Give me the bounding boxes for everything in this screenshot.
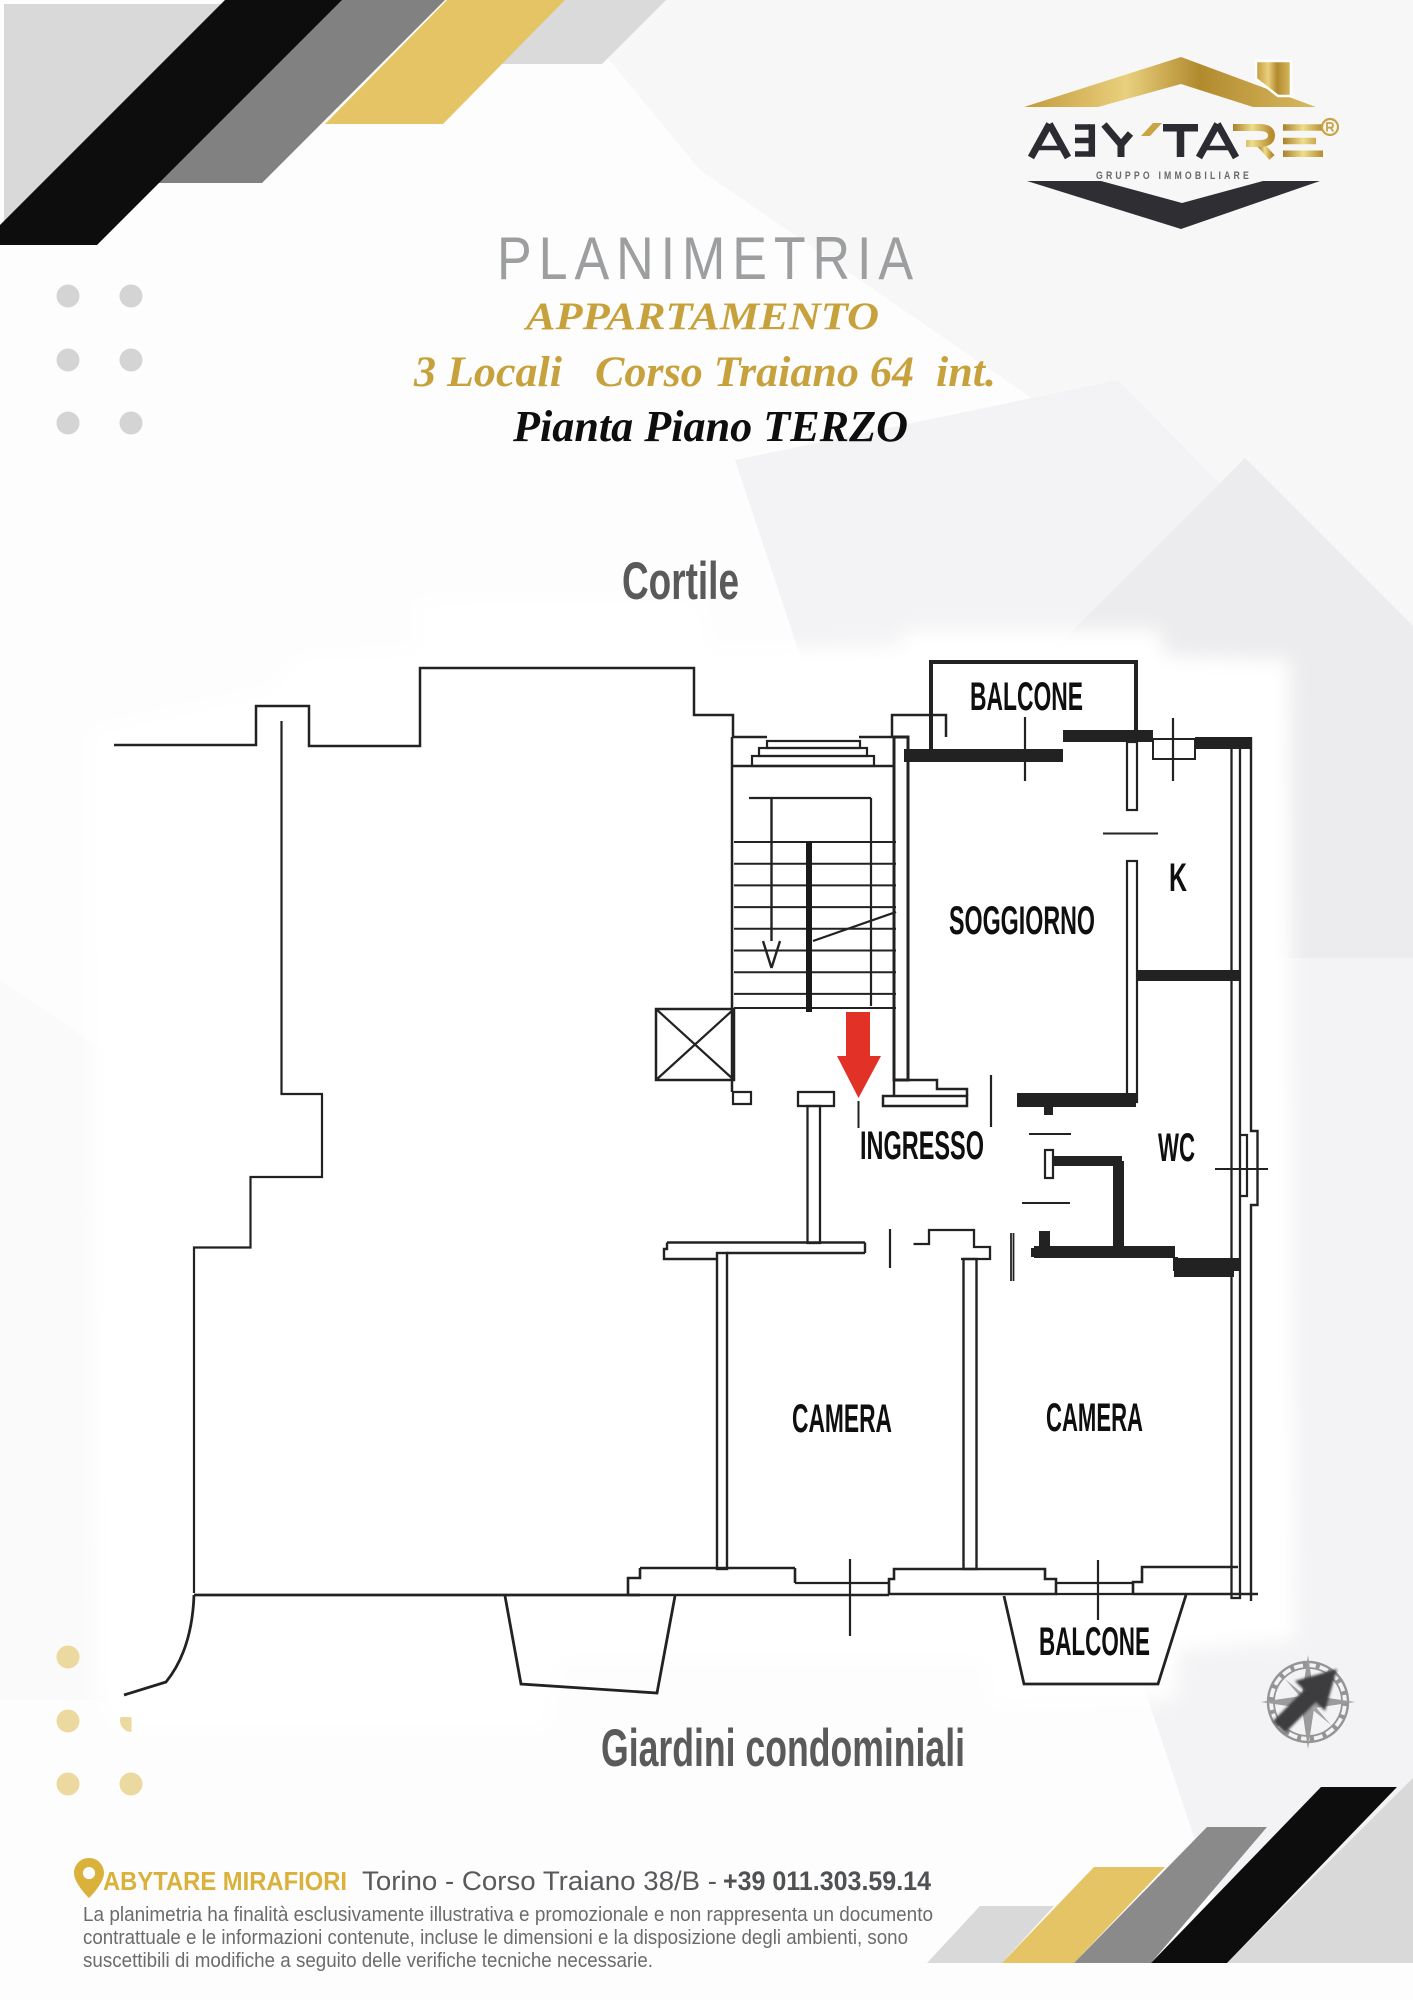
svg-text:+39 011.303.59.14: +39 011.303.59.14 — [723, 1866, 931, 1896]
svg-text:INGRESSO: INGRESSO — [860, 1124, 984, 1168]
svg-text:GRUPPO IMMOBILIARE: GRUPPO IMMOBILIARE — [1096, 170, 1252, 182]
svg-text:Giardini condominiali: Giardini condominiali — [601, 1719, 965, 1778]
svg-text:contrattuale e le informazioni: contrattuale e le informazioni contenute… — [83, 1927, 908, 1949]
svg-text:Pianta Piano TERZO: Pianta Piano TERZO — [512, 402, 908, 451]
svg-text:La planimetria ha finalità esc: La planimetria ha finalità esclusivament… — [83, 1904, 933, 1926]
svg-text:CAMERA: CAMERA — [792, 1397, 892, 1441]
svg-text:CAMERA: CAMERA — [1046, 1396, 1143, 1440]
svg-text:BALCONE: BALCONE — [1039, 1620, 1150, 1664]
svg-text:PLANIMETRIA: PLANIMETRIA — [497, 225, 920, 292]
svg-text:APPARTAMENTO: APPARTAMENTO — [523, 295, 879, 338]
svg-text:suscettibili di modifiche a se: suscettibili di modifiche a seguito dell… — [83, 1950, 653, 1972]
svg-text:K: K — [1169, 856, 1187, 900]
svg-text:Torino - Corso Traiano 38/B -: Torino - Corso Traiano 38/B - — [362, 1866, 717, 1896]
svg-text:WC: WC — [1158, 1126, 1195, 1170]
svg-text:Cortile: Cortile — [622, 552, 739, 611]
svg-text:ABYTARE MIRAFIORI: ABYTARE MIRAFIORI — [103, 1866, 347, 1896]
svg-text:BALCONE: BALCONE — [970, 675, 1083, 719]
svg-text:3 Locali Corso Traiano 64 i: 3 Locali Corso Traiano 64 int. — [413, 349, 996, 396]
svg-text:SOGGIORNO: SOGGIORNO — [949, 899, 1095, 943]
